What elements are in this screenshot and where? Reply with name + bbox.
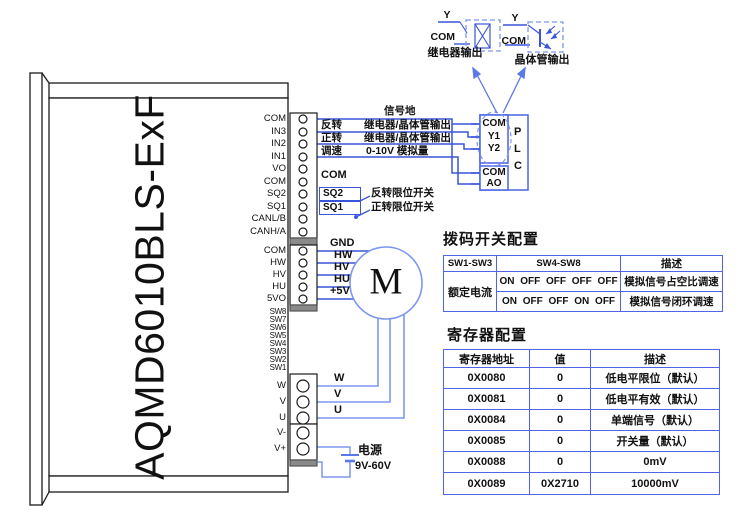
terminal-label-vplus: V+ (226, 444, 286, 454)
sq2-box: SQ2 (319, 187, 361, 201)
battery-icon (317, 447, 359, 477)
forward-desc: 继电器/晶体管输出 (364, 133, 451, 144)
transistor-output-caption: 晶体管输出 (510, 55, 574, 67)
terminal-label-canha: CANH/A (226, 227, 286, 237)
dip-label-sw1: SW1 (226, 364, 286, 372)
hv-wire-label: HV (334, 262, 349, 274)
plc-pin-stubs (471, 124, 480, 184)
v-wire-label: V (334, 389, 341, 401)
register-table: 寄存器地址 值 描述 0X0080 0 低电平限位（默认） 0X0081 0 低… (443, 349, 720, 495)
terminal-label-canlb: CANL/B (226, 214, 286, 224)
reverse-label: 反转 (321, 120, 342, 131)
com-wire-label: COM (321, 170, 347, 182)
relay-y-pin: Y (437, 10, 457, 21)
reg-row3-addr: 0X0085 (444, 431, 530, 452)
motor-letter: M (370, 261, 403, 304)
plc-pin-ao: AO (480, 179, 508, 190)
terminal-label-w: W (226, 381, 286, 391)
sq2-desc: 反转限位开关 (371, 188, 434, 199)
speed-desc: 0-10V 模拟量 (366, 146, 428, 157)
sq1-box: SQ1 (319, 201, 361, 215)
reg-row1-desc: 低电平有效（默认） (591, 389, 720, 410)
reg-row1-addr: 0X0081 (444, 389, 530, 410)
reg-row0-value: 0 (530, 368, 591, 389)
reg-row5-addr: 0X0089 (444, 473, 530, 495)
hw-wire-label: HW (334, 250, 352, 262)
terminal-label-hw: HW (226, 258, 286, 268)
plc-letter-c: C (514, 161, 522, 173)
terminal-label-in1: IN1 (226, 152, 286, 162)
5v-wire-label: +5V (330, 286, 350, 298)
phase-wires (317, 315, 404, 418)
terminal-label-v: V (226, 397, 286, 407)
terminal-label-vo: VO (226, 164, 286, 174)
dip-cell-row1-sw: ON OFF OFF OFF OFF (497, 272, 621, 292)
dip-header-desc: 描述 (621, 256, 723, 272)
terminal-label-sq1: SQ1 (226, 202, 286, 212)
terminal-label-hu: HU (226, 282, 286, 292)
terminal-label-com2: COM (226, 177, 286, 187)
reg-row2-addr: 0X0084 (444, 410, 530, 431)
plc-pin-y1: Y1 (480, 132, 508, 143)
output-type-arrows (473, 68, 525, 113)
terminal-label-hv: HV (226, 270, 286, 280)
reg-header-value: 值 (530, 350, 591, 368)
plc-letter-l: L (514, 144, 521, 156)
gnd-wire-label: GND (330, 238, 354, 250)
reg-row2-desc: 单端信号（默认） (591, 410, 720, 431)
forward-label: 正转 (321, 133, 342, 144)
plc-pin-y2: Y2 (480, 144, 508, 155)
terminal-label-in2: IN2 (226, 139, 286, 149)
reg-header-desc: 描述 (591, 350, 720, 368)
plc-pin-com-top: COM (480, 119, 508, 130)
reg-row0-addr: 0X0080 (444, 368, 530, 389)
relay-com-pin: COM (425, 32, 455, 43)
signal-ground-label: 信号地 (384, 106, 416, 117)
dip-cell-row2-sw: ON OFF OFF ON OFF (497, 292, 621, 312)
dip-table-title: 拨码开关配置 (443, 232, 539, 248)
register-table-title: 寄存器配置 (447, 328, 527, 344)
reg-row0-desc: 低电平限位（默认） (591, 368, 720, 389)
reg-row4-desc: 0mV (591, 452, 720, 473)
dip-header-sw48: SW4-SW8 (497, 256, 621, 272)
terminal-label-in3: IN3 (226, 127, 286, 137)
reg-row3-value: 0 (530, 431, 591, 452)
terminal-label-vminus: V- (226, 428, 286, 438)
power-voltage-label: 9V-60V (355, 461, 391, 473)
terminal-label-sq2: SQ2 (226, 189, 286, 199)
reg-row4-value: 0 (530, 452, 591, 473)
reg-row2-value: 0 (530, 410, 591, 431)
terminal-strips (290, 113, 317, 466)
terminal-label-5vo: 5VO (226, 294, 286, 304)
dip-cell-row1-desc: 模拟信号占空比调速 (621, 272, 723, 292)
reverse-desc: 继电器/晶体管输出 (364, 120, 451, 131)
plc-letter-p: P (514, 127, 521, 139)
speed-label: 调速 (321, 146, 342, 157)
reg-header-addr: 寄存器地址 (444, 350, 530, 368)
w-wire-label: W (334, 373, 344, 385)
dip-switch-table: SW1-SW3 SW4-SW8 描述 额定电流 ON OFF OFF OFF O… (443, 255, 723, 312)
plc-pin-com-bottom: COM (480, 168, 508, 179)
dip-cell-row2-desc: 模拟信号闭环调速 (621, 292, 723, 312)
u-wire-label: U (334, 405, 342, 417)
reg-row4-addr: 0X0088 (444, 452, 530, 473)
reg-row3-desc: 开关量（默认） (591, 431, 720, 452)
relay-output-caption: 继电器输出 (424, 48, 486, 60)
terminal-label-com1: COM (226, 114, 286, 124)
sq1-desc: 正转限位开关 (371, 202, 434, 213)
hu-wire-label: HU (334, 274, 350, 286)
transistor-com-pin: COM (496, 36, 526, 47)
transistor-y-pin: Y (505, 13, 525, 24)
reg-row5-value: 0X2710 (530, 473, 591, 495)
terminal-label-com3: COM (226, 246, 286, 256)
terminal-label-u: U (226, 413, 286, 423)
wiring-diagram-page: AQMD6010BLS-ExF M Y COM 继电器输出 Y COM 晶体管输… (0, 0, 750, 518)
device-model-label: AQMD6010BLS-ExF (128, 94, 171, 480)
reg-row5-desc: 10000mV (591, 473, 720, 495)
dip-cell-rated-current: 额定电流 (444, 272, 497, 312)
power-supply-label: 电源 (358, 444, 382, 457)
dip-header-sw13: SW1-SW3 (444, 256, 497, 272)
reg-row1-value: 0 (530, 389, 591, 410)
